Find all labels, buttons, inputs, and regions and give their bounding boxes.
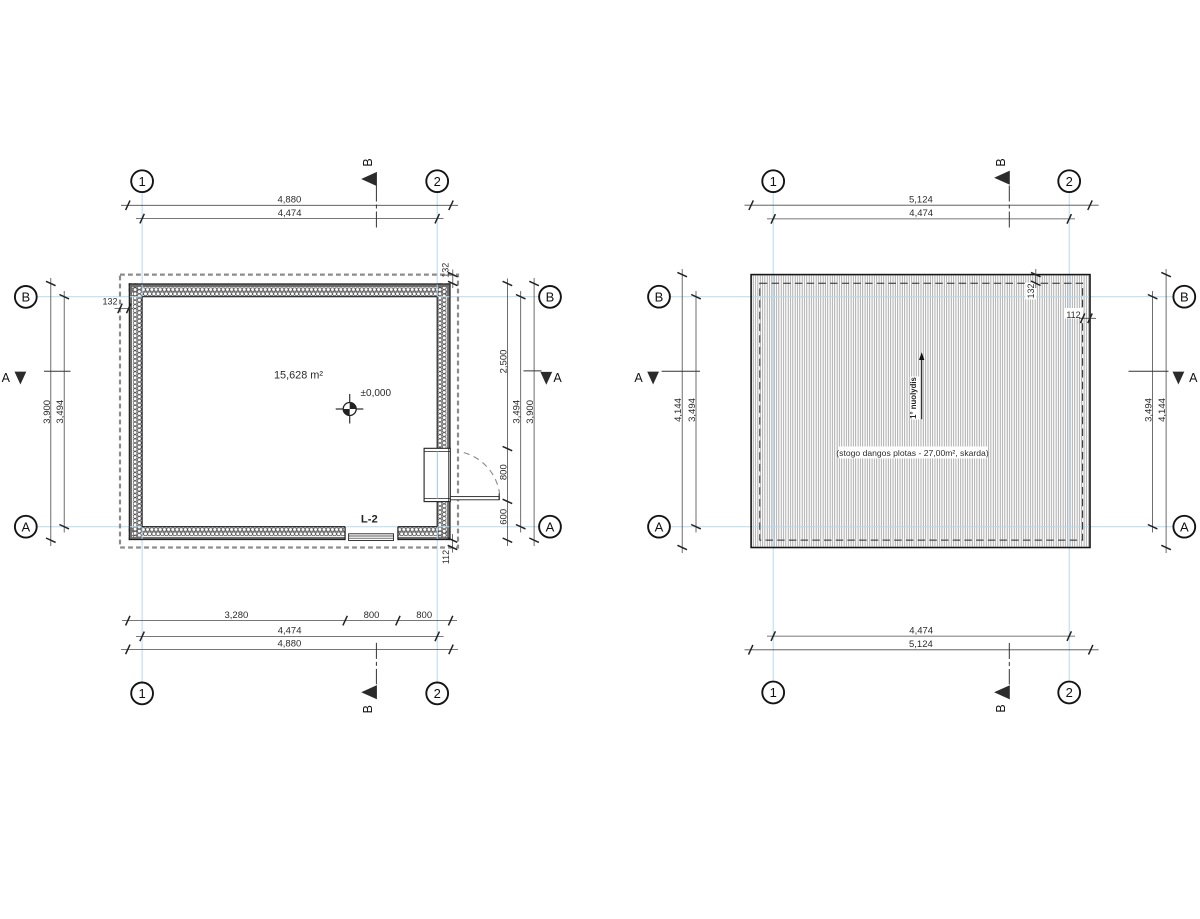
svg-text:15,628 m²: 15,628 m² <box>274 370 323 382</box>
svg-text:A: A <box>634 371 643 385</box>
svg-text:2: 2 <box>1066 174 1073 189</box>
svg-text:1: 1 <box>138 174 145 189</box>
svg-text:B: B <box>546 290 555 305</box>
svg-text:A: A <box>655 519 664 534</box>
svg-text:B: B <box>1180 289 1189 304</box>
svg-text:A: A <box>1189 371 1198 385</box>
svg-text:3,280: 3,280 <box>225 610 249 621</box>
svg-text:A: A <box>1180 519 1189 534</box>
svg-text:112: 112 <box>1066 310 1080 320</box>
svg-text:B: B <box>994 158 1008 166</box>
svg-text:B: B <box>361 705 375 713</box>
svg-text:(stogo dangos plotas - 27,00m²: (stogo dangos plotas - 27,00m², skarda) <box>836 448 989 458</box>
svg-text:B: B <box>361 158 375 166</box>
svg-text:132: 132 <box>441 263 451 278</box>
svg-text:132: 132 <box>102 296 117 306</box>
svg-text:2,500: 2,500 <box>498 350 509 374</box>
svg-text:3,494: 3,494 <box>512 400 523 424</box>
svg-text:600: 600 <box>498 509 509 525</box>
svg-text:5,124: 5,124 <box>909 195 933 206</box>
svg-text:2: 2 <box>434 174 441 189</box>
svg-text:3,494: 3,494 <box>55 400 66 424</box>
svg-text:1: 1 <box>770 685 777 700</box>
svg-text:112: 112 <box>441 550 451 564</box>
svg-text:1: 1 <box>138 686 145 701</box>
svg-text:132: 132 <box>1026 283 1036 298</box>
svg-text:3,900: 3,900 <box>525 400 536 424</box>
svg-text:A: A <box>546 519 555 534</box>
svg-text:2: 2 <box>1066 685 1073 700</box>
svg-text:4,144: 4,144 <box>1157 398 1168 422</box>
svg-text:800: 800 <box>364 610 380 621</box>
svg-text:800: 800 <box>416 610 432 621</box>
svg-text:L-2: L-2 <box>361 514 378 526</box>
svg-text:A: A <box>553 371 562 385</box>
svg-text:5,124: 5,124 <box>909 639 933 650</box>
svg-text:1: 1 <box>770 174 777 189</box>
svg-text:B: B <box>655 289 664 304</box>
svg-text:B: B <box>21 290 30 305</box>
svg-text:4,474: 4,474 <box>278 626 302 637</box>
svg-text:A: A <box>2 371 11 385</box>
svg-text:3,494: 3,494 <box>1144 398 1155 422</box>
svg-text:B: B <box>994 704 1008 712</box>
svg-text:4,474: 4,474 <box>909 208 933 219</box>
svg-text:4,880: 4,880 <box>278 639 302 650</box>
svg-text:4,474: 4,474 <box>278 208 302 219</box>
svg-text:4,474: 4,474 <box>909 625 933 636</box>
svg-text:2: 2 <box>434 686 441 701</box>
svg-text:1° nuolydis: 1° nuolydis <box>909 377 918 419</box>
svg-text:±0,000: ±0,000 <box>361 388 392 399</box>
svg-text:A: A <box>21 519 30 534</box>
svg-text:3,494: 3,494 <box>687 398 698 422</box>
svg-text:4,144: 4,144 <box>673 398 684 422</box>
svg-text:3,900: 3,900 <box>42 400 53 424</box>
svg-text:800: 800 <box>498 464 509 480</box>
svg-text:4,880: 4,880 <box>278 195 302 206</box>
